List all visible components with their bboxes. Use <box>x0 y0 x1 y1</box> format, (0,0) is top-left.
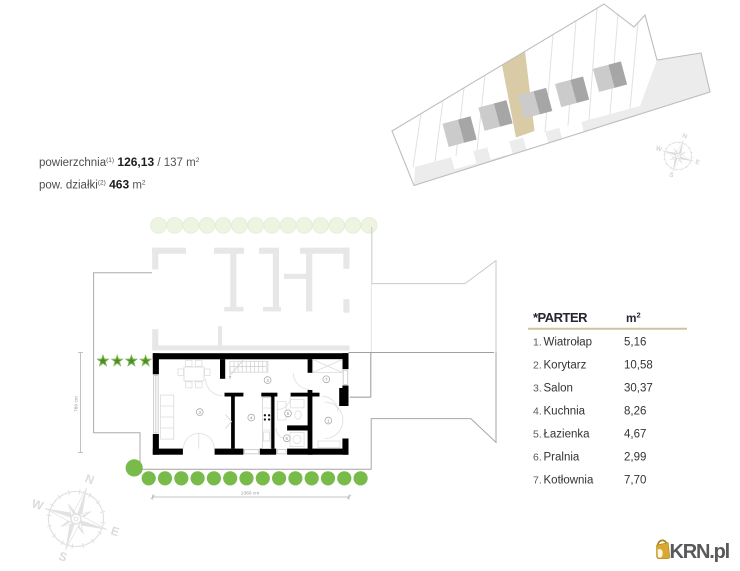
svg-text:5,16: 5,16 <box>624 337 646 349</box>
svg-text:pow. działki(2) 463 m2: pow. działki(2) 463 m2 <box>39 178 146 192</box>
svg-text:Kuchnia: Kuchnia <box>544 406 586 418</box>
svg-text:4,67: 4,67 <box>624 429 646 441</box>
svg-text:3.: 3. <box>533 383 542 395</box>
svg-text:1: 1 <box>327 418 330 423</box>
svg-text:6: 6 <box>286 436 289 441</box>
svg-text:30,37: 30,37 <box>624 383 653 395</box>
svg-text:7,70: 7,70 <box>624 475 646 487</box>
svg-text:KRN.pl: KRN.pl <box>670 541 730 563</box>
svg-text:powierzchnia(1) 126,13 / 137 m: powierzchnia(1) 126,13 / 137 m2 <box>39 155 200 169</box>
svg-text:2: 2 <box>266 378 269 383</box>
svg-text:6.: 6. <box>533 452 542 464</box>
svg-text:4: 4 <box>250 415 253 420</box>
svg-text:4.: 4. <box>533 406 542 418</box>
svg-text:Korytarz: Korytarz <box>544 360 587 372</box>
svg-text:*PARTER: *PARTER <box>533 310 588 325</box>
svg-text:Salon: Salon <box>544 383 573 395</box>
svg-text:1.: 1. <box>533 337 542 349</box>
svg-text:780 cm: 780 cm <box>74 396 80 412</box>
svg-text:2.: 2. <box>533 360 542 372</box>
svg-text:Kotłownia: Kotłownia <box>544 475 594 487</box>
svg-text:10,58: 10,58 <box>624 360 653 372</box>
svg-text:Pralnia: Pralnia <box>544 452 580 464</box>
svg-text:7: 7 <box>325 377 328 382</box>
svg-text:5: 5 <box>287 411 290 416</box>
svg-text:7.: 7. <box>533 475 542 487</box>
svg-text:8,26: 8,26 <box>624 406 646 418</box>
svg-text:2,99: 2,99 <box>624 452 646 464</box>
svg-text:1360 cm: 1360 cm <box>241 491 259 497</box>
svg-text:Wiatrołap: Wiatrołap <box>544 337 593 349</box>
svg-text:5.: 5. <box>533 429 542 441</box>
svg-text:3: 3 <box>198 410 201 415</box>
svg-text:Łazienka: Łazienka <box>544 429 591 441</box>
